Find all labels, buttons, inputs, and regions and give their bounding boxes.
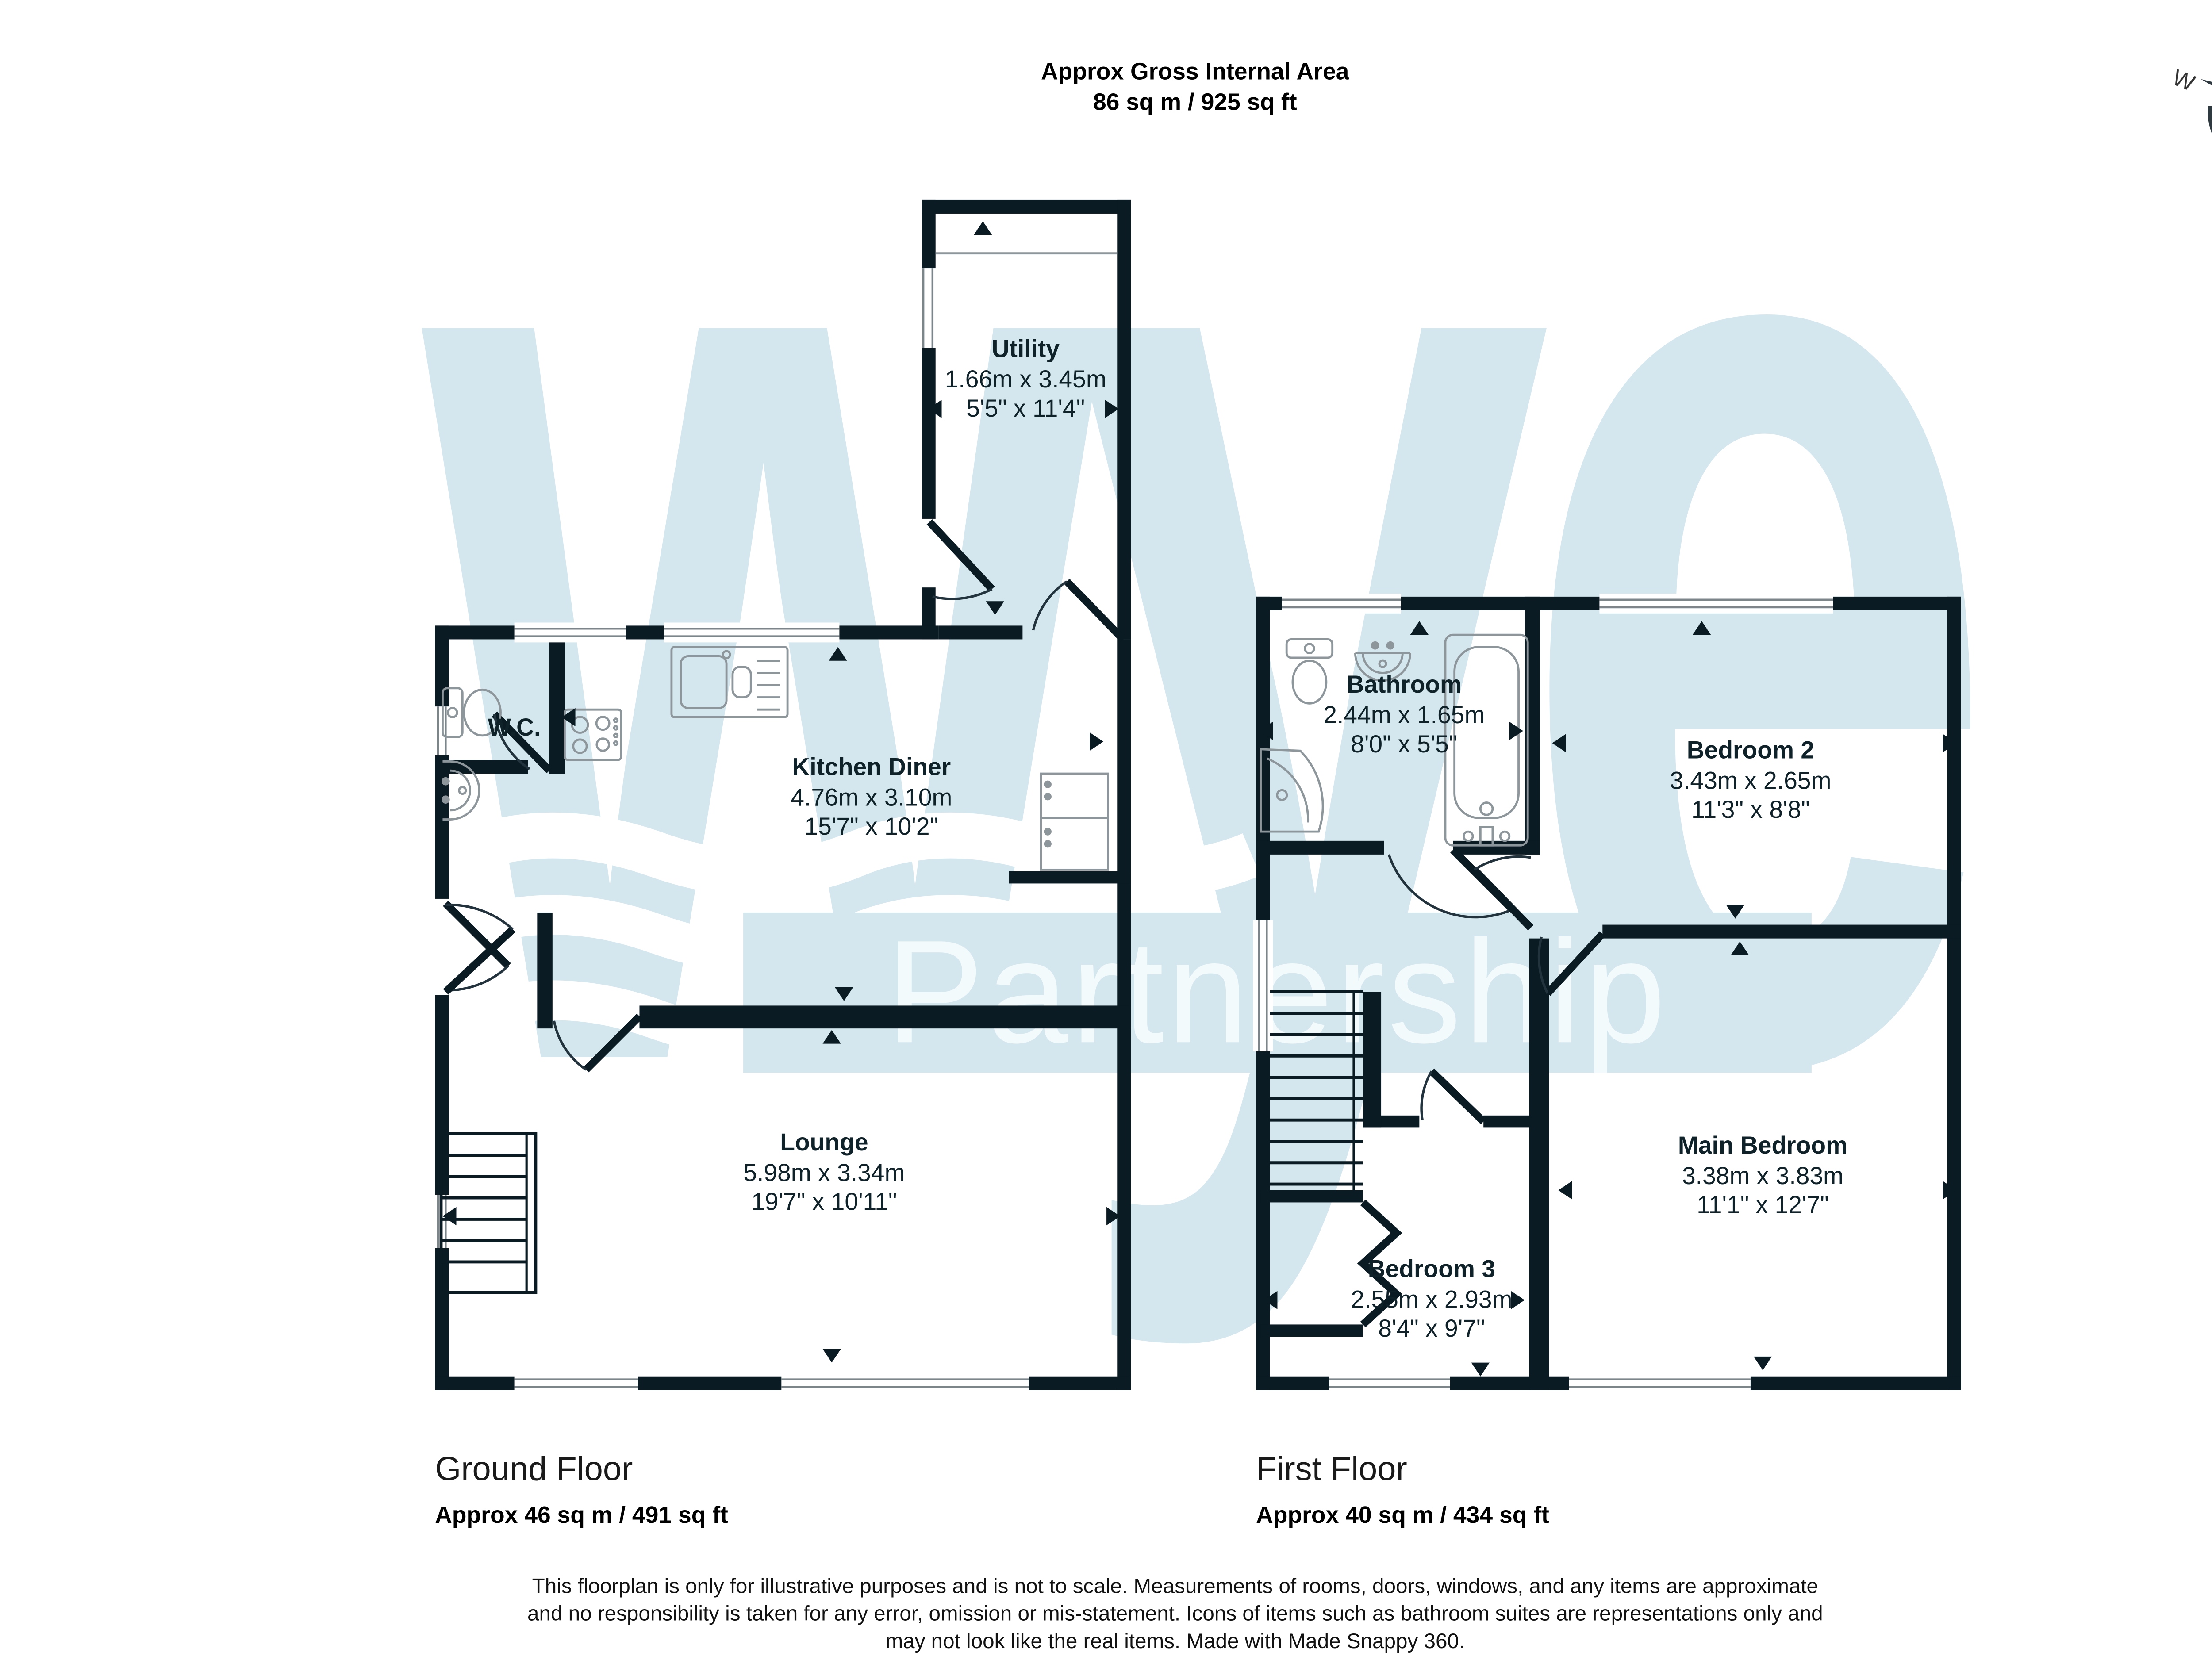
floorplan-drawing: N E S W bbox=[0, 0, 2212, 1668]
compass-icon: N E S W bbox=[2130, 0, 2212, 264]
shower-icon bbox=[1261, 749, 1323, 832]
floorplan-page: wye Partnership bbox=[0, 0, 2212, 1668]
compass-west-label: W bbox=[2169, 64, 2199, 96]
bathtub-icon bbox=[1445, 635, 1528, 845]
first-floor-doors bbox=[1363, 850, 1603, 1325]
ground-floor-windows bbox=[432, 268, 1029, 1393]
first-floor-stairs bbox=[1270, 992, 1363, 1190]
kitchen-sink-icon bbox=[672, 647, 787, 717]
bathroom-toilet-icon bbox=[1286, 639, 1332, 703]
measure-arrow-icons bbox=[442, 221, 1956, 1376]
ground-floor-walls bbox=[435, 200, 1131, 1390]
bathroom-basin-icon bbox=[1355, 642, 1410, 680]
